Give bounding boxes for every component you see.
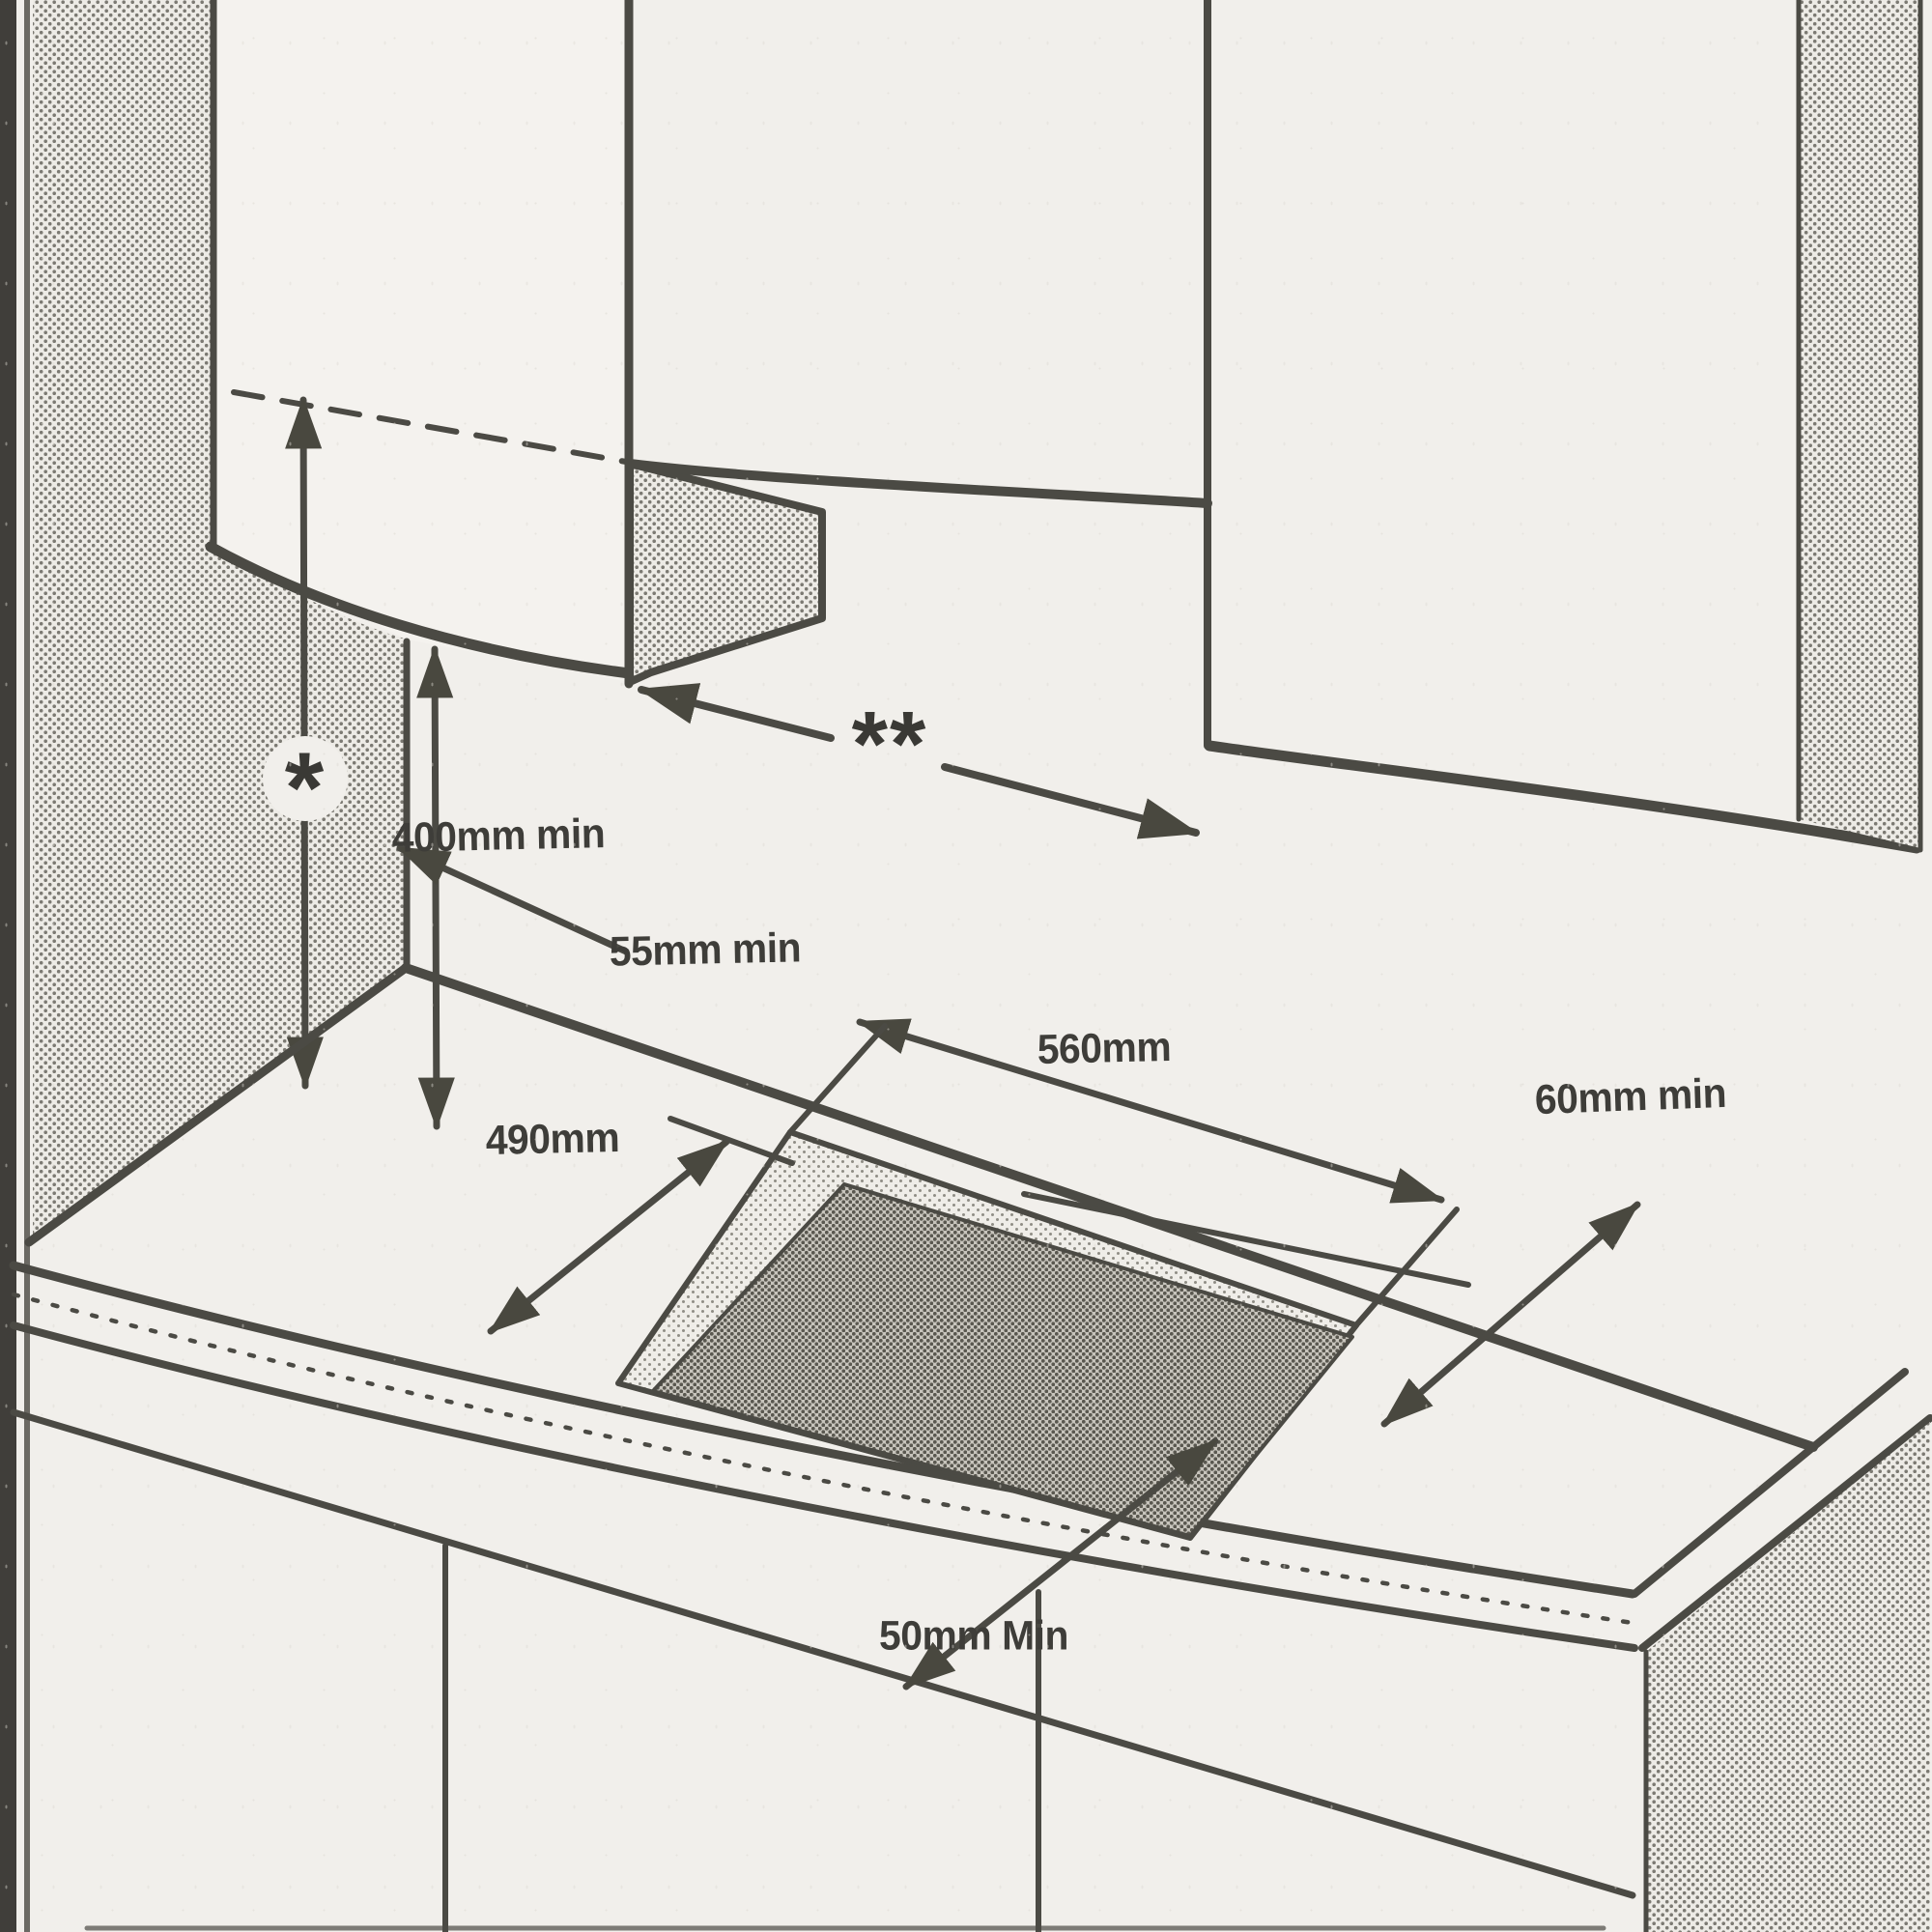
dim-label-490mm: 490mm	[485, 1118, 619, 1162]
dim-400-arrow	[435, 649, 437, 1126]
cooker-hood	[630, 464, 822, 682]
double-star-marker: **	[852, 698, 928, 791]
hob-installation-diagram: * ** 400mm min 55mm min 560mm 490mm 60mm…	[0, 0, 1932, 1932]
dim-label-60mm-min: 60mm min	[1534, 1073, 1727, 1122]
base-cabinet-side-panel	[1646, 1422, 1930, 1932]
right-cabinet-side-panel	[1799, 0, 1920, 848]
dim-label-55mm-min: 55mm min	[609, 927, 801, 973]
hob-cutout	[618, 1132, 1356, 1538]
dim-label-400mm-min: 400mm min	[391, 813, 605, 860]
star-marker: *	[285, 738, 326, 838]
dim-label-560mm: 560mm	[1037, 1027, 1171, 1071]
dim-label-50mm-min: 50mm Min	[879, 1616, 1068, 1658]
upper-right-cabinet	[1207, 0, 1920, 850]
upper-left-cabinet	[211, 0, 629, 684]
left-wall-edge	[0, 0, 27, 1932]
base-cabinet-top-line	[14, 1412, 1633, 1895]
base-cabinets	[14, 1412, 1930, 1932]
